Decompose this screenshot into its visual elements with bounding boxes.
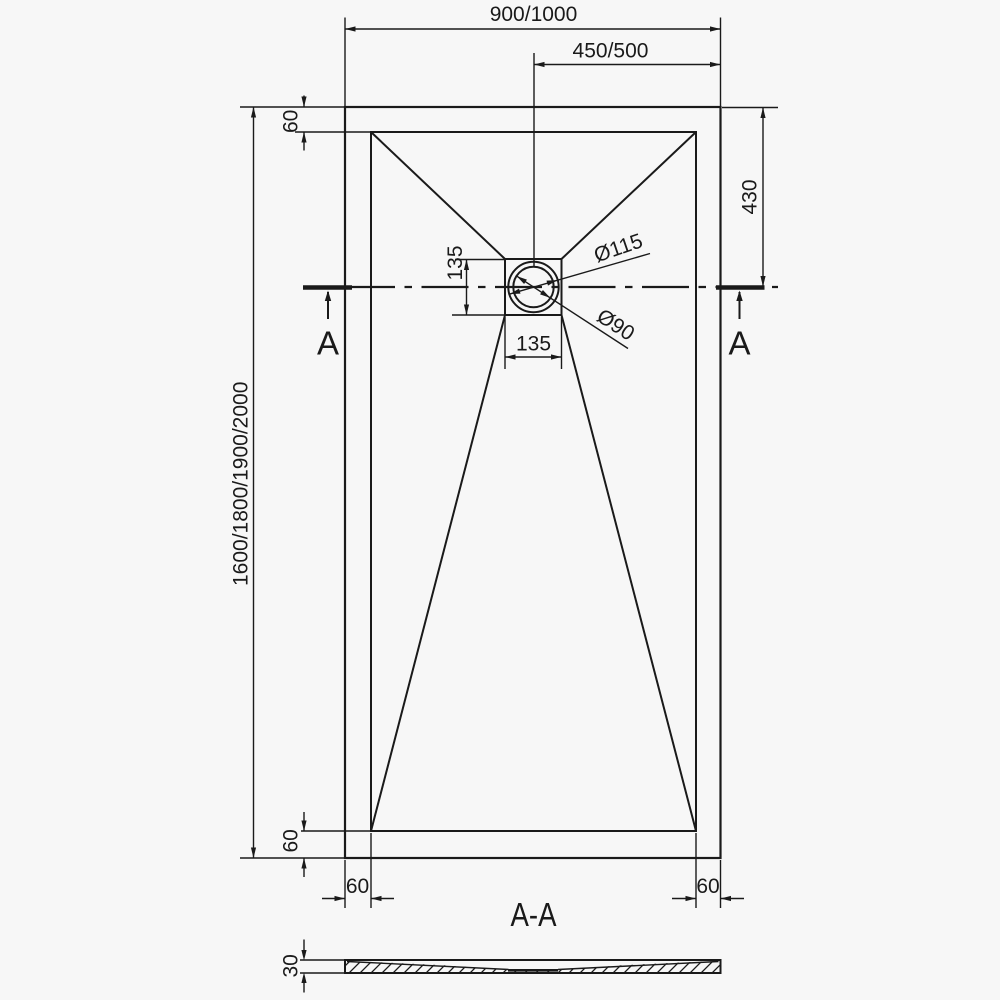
svg-text:450/500: 450/500 <box>573 40 649 63</box>
svg-text:60: 60 <box>280 829 303 852</box>
svg-text:135: 135 <box>444 245 467 280</box>
svg-text:A-A: A-A <box>511 896 557 933</box>
svg-text:A: A <box>728 325 750 362</box>
svg-text:430: 430 <box>739 179 762 214</box>
svg-text:60: 60 <box>696 875 719 898</box>
svg-text:60: 60 <box>280 110 303 133</box>
svg-text:A: A <box>317 325 339 362</box>
svg-text:1600/1800/1900/2000: 1600/1800/1900/2000 <box>230 382 253 586</box>
svg-text:135: 135 <box>516 333 551 356</box>
svg-text:60: 60 <box>346 875 369 898</box>
svg-text:30: 30 <box>280 954 303 977</box>
svg-text:900/1000: 900/1000 <box>490 3 578 26</box>
